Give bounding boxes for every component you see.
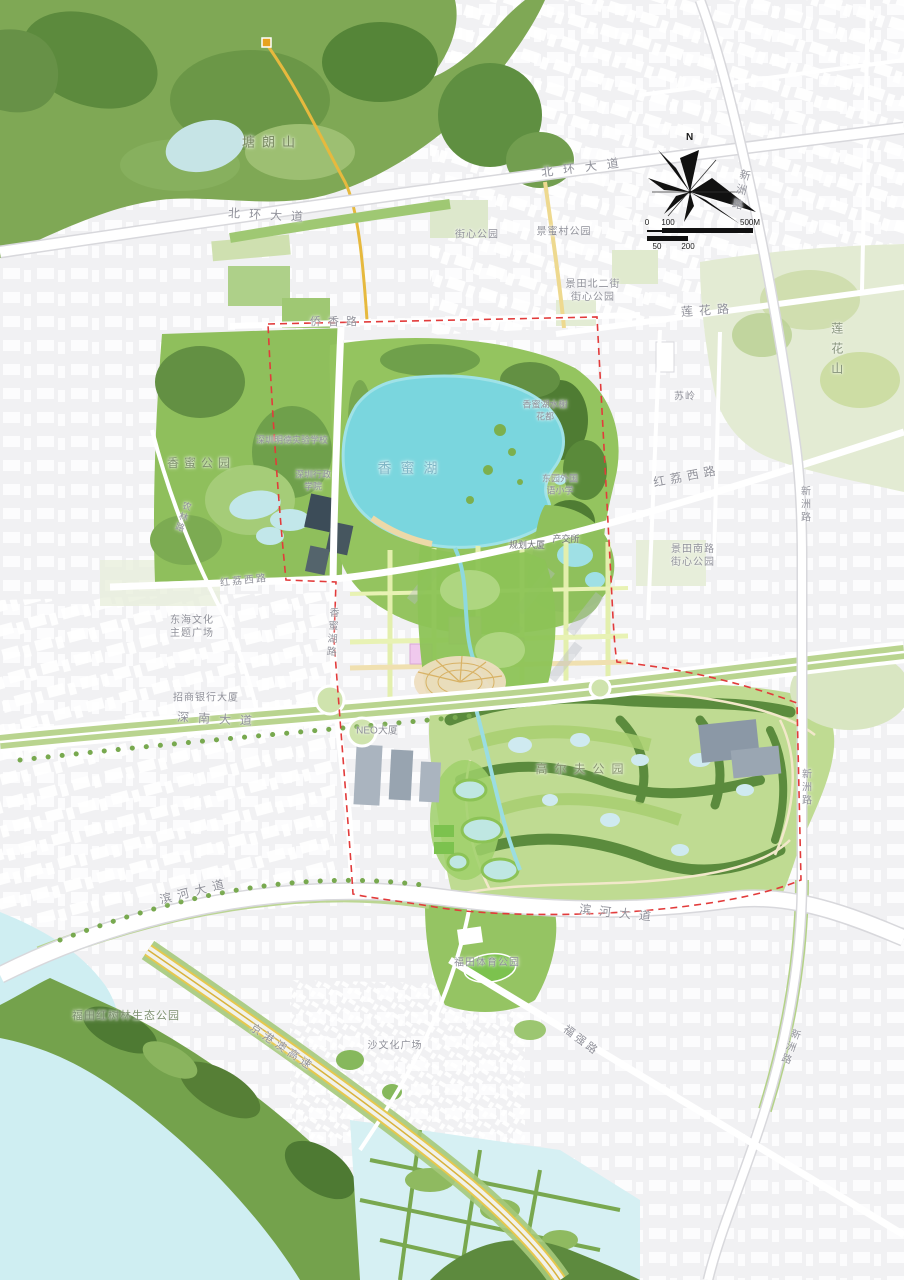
- scale-tick: 500M: [740, 218, 760, 227]
- scale-tick: 50: [653, 242, 662, 251]
- scale-bar: 0 100 500M 50 200: [644, 218, 764, 250]
- compass-north-label: N: [686, 132, 693, 143]
- scale-bar-segment: [647, 236, 688, 241]
- scale-tick: 100: [661, 218, 674, 227]
- compass: N: [640, 130, 770, 220]
- map-canvas[interactable]: 塘朗山北环大道北环大道街心公园景蜜村公园景田北二街街心公园莲花路莲花山新洲路苏岭…: [0, 0, 904, 1280]
- scale-tick: 200: [681, 242, 694, 251]
- scale-tick: 0: [645, 218, 649, 227]
- scale-bar-segment: [647, 230, 662, 232]
- scale-bar-segment: [662, 228, 753, 233]
